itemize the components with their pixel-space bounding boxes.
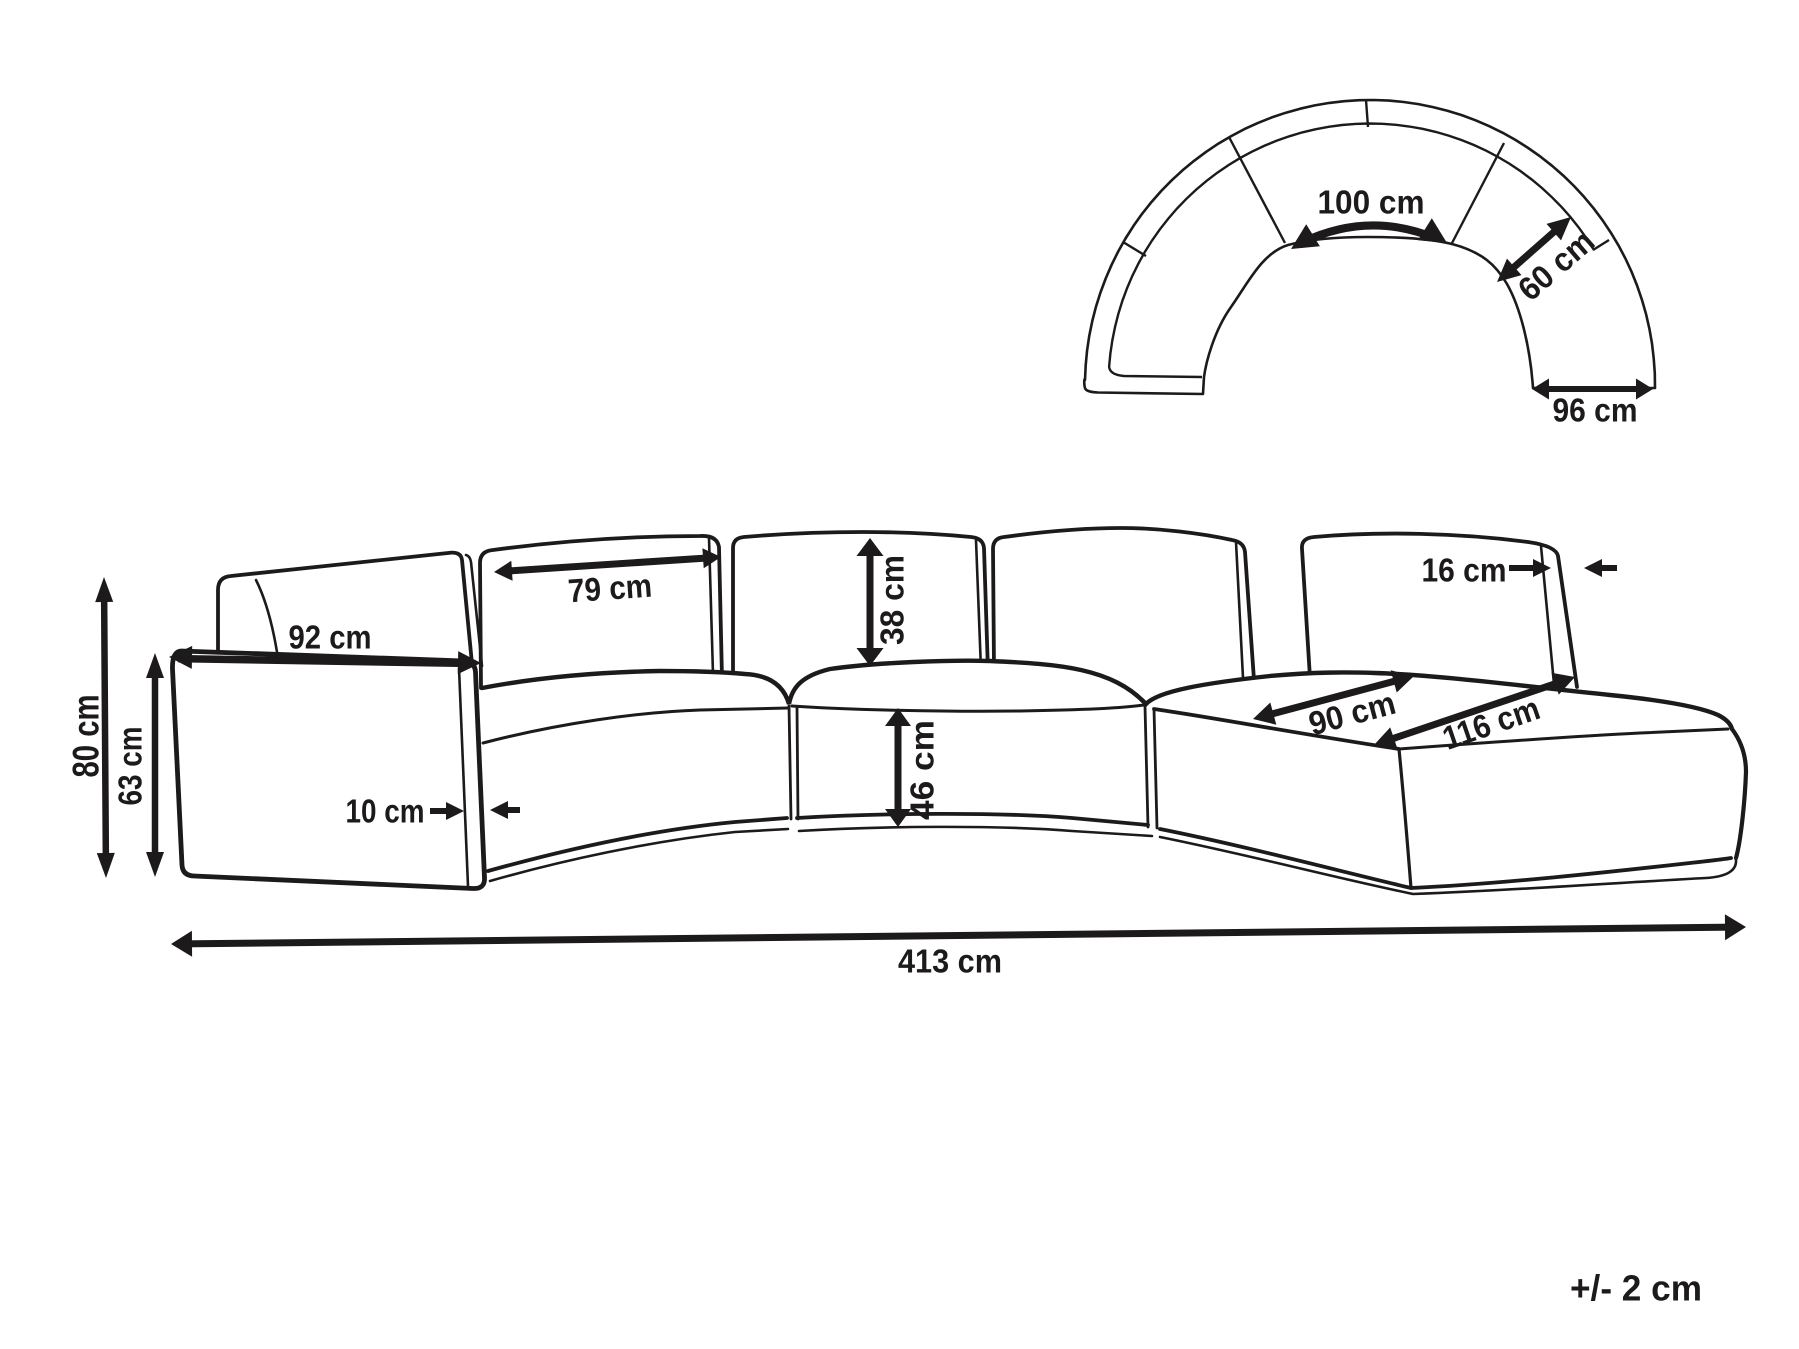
- svg-text:+/- 2 cm: +/- 2 cm: [1570, 1268, 1702, 1309]
- svg-text:10 cm: 10 cm: [346, 793, 425, 830]
- svg-text:92 cm: 92 cm: [289, 619, 372, 656]
- svg-text:46 cm: 46 cm: [904, 720, 941, 820]
- svg-text:16 cm: 16 cm: [1422, 552, 1507, 589]
- svg-text:63 cm: 63 cm: [112, 727, 149, 806]
- svg-text:80 cm: 80 cm: [66, 695, 107, 778]
- svg-text:79 cm: 79 cm: [567, 567, 653, 610]
- svg-text:100 cm: 100 cm: [1318, 184, 1425, 221]
- svg-text:96 cm: 96 cm: [1553, 392, 1638, 429]
- svg-text:38 cm: 38 cm: [874, 555, 911, 645]
- svg-text:413 cm: 413 cm: [898, 943, 1002, 980]
